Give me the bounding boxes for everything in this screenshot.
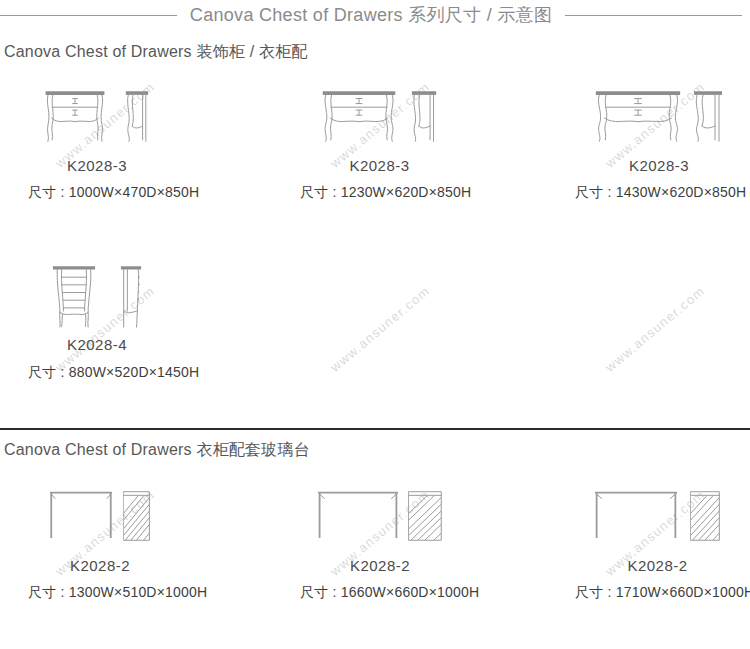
figure-group xyxy=(52,265,298,329)
model-number: K2028-2 xyxy=(595,557,720,574)
product-card: K2028-2 尺寸 : 1300W×510D×1000H xyxy=(28,491,298,602)
model-number: K2028-2 xyxy=(318,557,442,574)
figure-group xyxy=(45,84,298,142)
product-card: K2028-3 尺寸 : 1430W×620D×850H xyxy=(575,84,750,202)
figure-group xyxy=(595,491,750,541)
figure-group xyxy=(595,84,750,142)
figure-group xyxy=(50,491,298,541)
model-number: K2028-2 xyxy=(50,557,150,574)
dimensions-text: 尺寸 : 1660W×660D×1000H xyxy=(300,584,570,602)
chest-side-drawing xyxy=(411,84,437,142)
glass-table-front-drawing xyxy=(50,491,112,538)
dimensions-text: 尺寸 : 1230W×620D×850H xyxy=(300,184,570,202)
model-number: K2028-4 xyxy=(52,336,142,353)
section-heading-glass-tables: Canova Chest of Drawers 衣柜配套玻璃台 xyxy=(4,440,310,461)
product-card: K2028-2 尺寸 : 1660W×660D×1000H xyxy=(300,491,570,602)
product-card: K2028-3 尺寸 : 1000W×470D×850H xyxy=(28,84,298,202)
chest-side-drawing xyxy=(693,84,723,142)
figure-group xyxy=(318,491,570,541)
chest-front-drawing xyxy=(595,84,681,142)
model-number: K2028-3 xyxy=(322,157,437,174)
title-rule-left xyxy=(0,15,177,16)
glass-panel-drawing xyxy=(123,491,150,541)
watermark-text: www.ansuner.com xyxy=(327,283,432,375)
dimensions-text: 尺寸 : 1710W×660D×1000H xyxy=(575,584,750,602)
glass-table-front-drawing xyxy=(595,491,677,538)
dimensions-text: 尺寸 : 1300W×510D×1000H xyxy=(28,584,298,602)
dimensions-text: 尺寸 : 880W×520D×1450H xyxy=(28,364,298,382)
tallboy-front-drawing xyxy=(52,265,96,329)
title-rule-right xyxy=(565,15,742,16)
tallboy-side-drawing xyxy=(120,265,142,329)
dimensions-text: 尺寸 : 1430W×620D×850H xyxy=(575,184,750,202)
product-card: K2028-2 尺寸 : 1710W×660D×1000H xyxy=(575,491,750,602)
glass-table-front-drawing xyxy=(318,491,398,538)
chest-front-drawing xyxy=(322,84,396,142)
page-title-bar: Canova Chest of Drawers 系列尺寸 / 示意图 xyxy=(0,3,742,27)
section-heading-cabinets: Canova Chest of Drawers 装饰柜 / 衣柜配 xyxy=(4,42,308,63)
product-card: K2028-4 尺寸 : 880W×520D×1450H xyxy=(28,265,298,382)
section-divider xyxy=(0,428,750,430)
model-number: K2028-3 xyxy=(595,157,723,174)
dimensions-text: 尺寸 : 1000W×470D×850H xyxy=(28,184,298,202)
chest-side-drawing xyxy=(125,84,149,142)
figure-group xyxy=(322,84,570,142)
chest-front-drawing xyxy=(45,84,105,142)
product-card: K2028-3 尺寸 : 1230W×620D×850H xyxy=(300,84,570,202)
model-number: K2028-3 xyxy=(45,157,149,174)
glass-panel-drawing xyxy=(408,491,442,541)
page-title: Canova Chest of Drawers 系列尺寸 / 示意图 xyxy=(190,3,552,27)
watermark-text: www.ansuner.com xyxy=(602,283,707,375)
glass-panel-drawing xyxy=(690,491,720,541)
